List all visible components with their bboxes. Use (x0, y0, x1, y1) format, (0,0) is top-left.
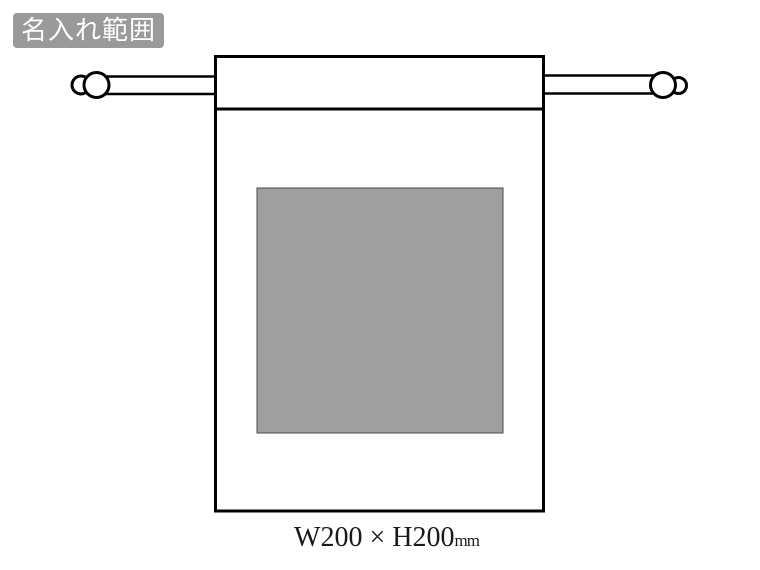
print-area-box (257, 188, 503, 433)
print-area-badge: 名入れ範囲 (13, 13, 164, 48)
cord-knot-large-icon (84, 73, 109, 98)
drawstring-cord-right (544, 73, 687, 98)
dimension-text: W200 × H200 (294, 522, 454, 553)
dimension-caption: W200 × H200mm (214, 521, 559, 558)
drawstring-cord-left (72, 73, 215, 98)
dimension-unit: mm (455, 531, 479, 550)
cord-knot-large-icon (651, 73, 676, 98)
drawstring-pouch-illustration (0, 0, 760, 570)
print-area-diagram: 名入れ範囲 W200 × H200mm (0, 0, 760, 570)
pouch-top-band (216, 57, 544, 110)
